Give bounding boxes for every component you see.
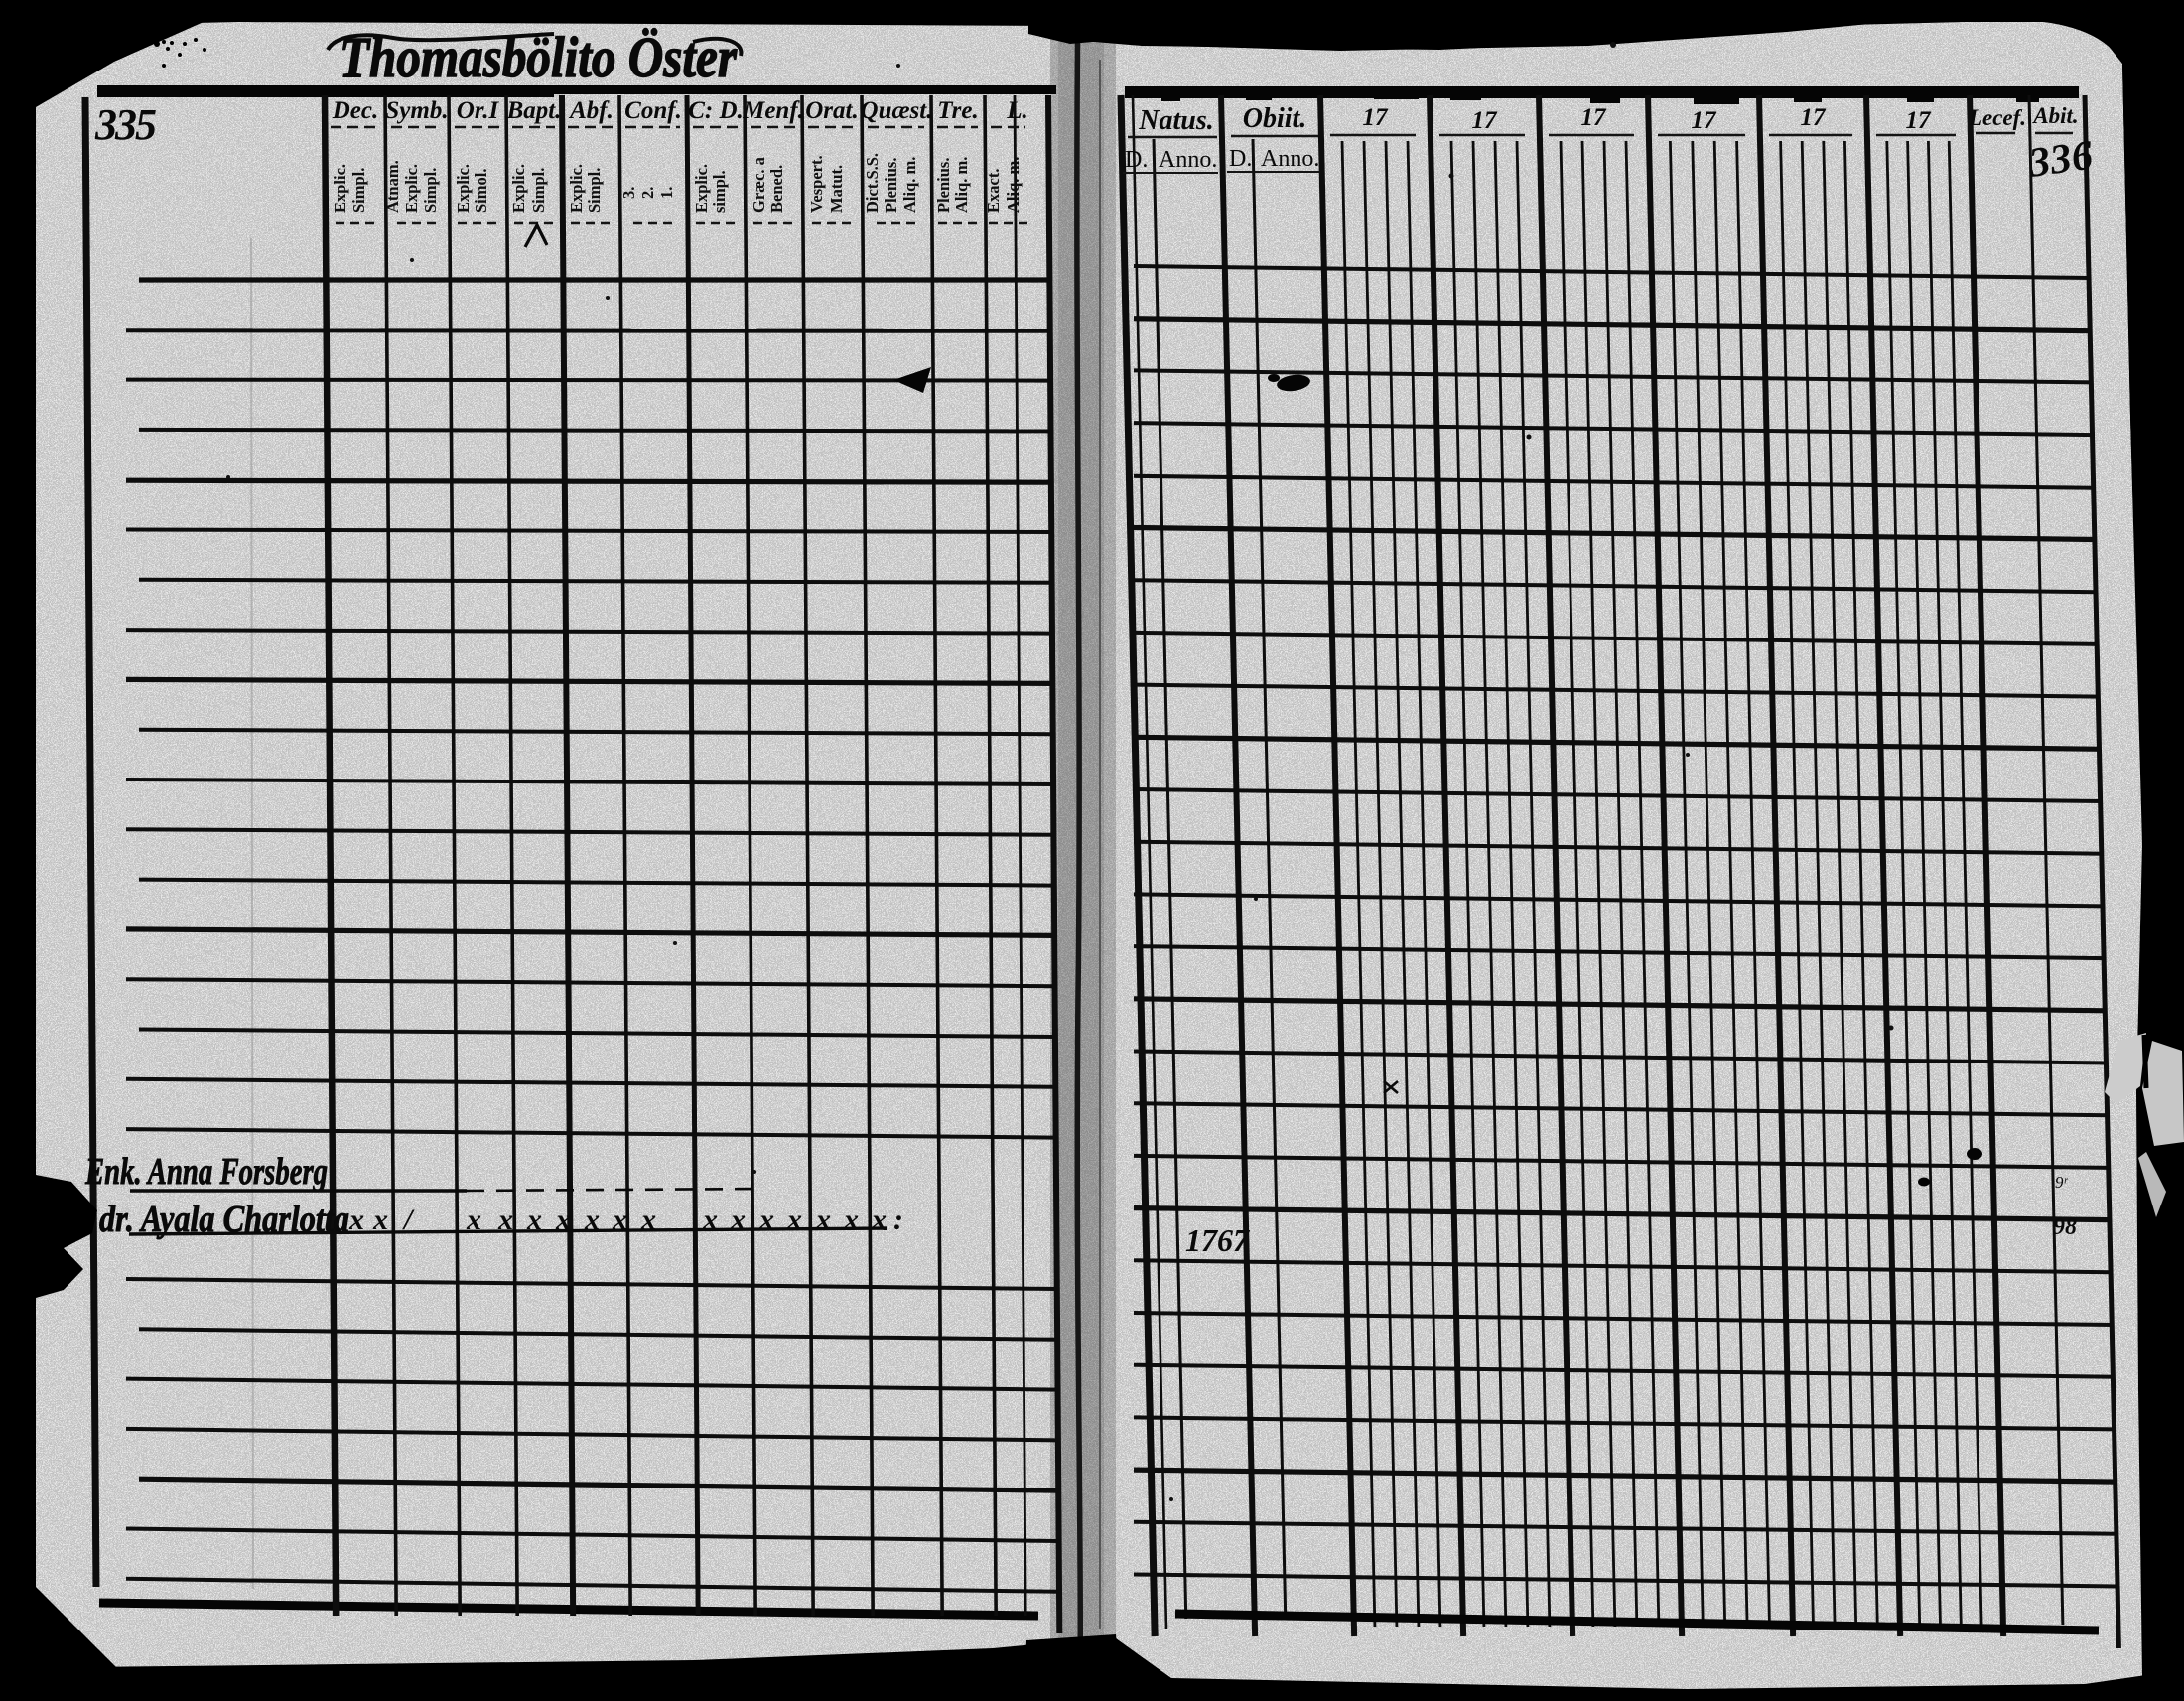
svg-text:Tre.: Tre.: [937, 97, 978, 124]
svg-text:Symb.: Symb.: [385, 97, 448, 124]
svg-text:17: 17: [1906, 107, 1933, 134]
svg-text:Quæst.: Quæst.: [861, 97, 933, 124]
svg-text:Explic.: Explic.: [567, 164, 586, 213]
svg-text:Atnam.: Atnam.: [383, 160, 402, 213]
svg-text:Abit.: Abit.: [2031, 103, 2078, 128]
svg-text:Lecef.: Lecef.: [1968, 105, 2026, 130]
svg-text:17: 17: [1581, 104, 1608, 131]
svg-text:Anno.: Anno.: [1159, 147, 1217, 173]
svg-text:Orat.: Orat.: [805, 97, 858, 124]
svg-text:17: 17: [1801, 104, 1828, 131]
svg-text:1.: 1.: [657, 187, 676, 199]
svg-text:3.: 3.: [619, 187, 638, 199]
svg-text:Anno.: Anno.: [1261, 146, 1319, 172]
svg-text:Græc. a: Græc. a: [750, 157, 768, 213]
svg-text:simpl.: simpl.: [710, 170, 729, 213]
svg-text:Conf.: Conf.: [624, 97, 682, 124]
svg-text:D.: D.: [1125, 147, 1148, 173]
svg-text:Natus.: Natus.: [1138, 105, 1213, 136]
svg-text:Exact.: Exact.: [984, 169, 1003, 213]
svg-text:Dec.: Dec.: [332, 97, 379, 124]
svg-text:Enk. Anna Forsberg: Enk. Anna Forsberg: [84, 1151, 328, 1193]
svg-text:Simpl.: Simpl.: [585, 168, 604, 213]
svg-text:Simpl.: Simpl.: [349, 168, 368, 213]
svg-text:Bapt.: Bapt.: [506, 97, 562, 124]
svg-text:Simpl.: Simpl.: [529, 168, 548, 213]
svg-text:Dict.S.S.: Dict.S.S.: [863, 153, 882, 213]
svg-text:L.: L.: [1006, 97, 1028, 124]
svg-text:Aliq. m.: Aliq. m.: [1004, 157, 1023, 213]
svg-text:Plenius.: Plenius.: [882, 158, 900, 213]
svg-text:Explic.: Explic.: [331, 164, 349, 213]
svg-text:336: 336: [2025, 132, 2096, 187]
svg-text:Explic.: Explic.: [402, 164, 421, 213]
svg-text:98: 98: [2053, 1214, 2077, 1240]
svg-text:Obiit.: Obiit.: [1243, 103, 1307, 134]
svg-text:9ʳ: 9ʳ: [2055, 1173, 2069, 1192]
svg-text:Menf.: Menf.: [742, 97, 804, 124]
svg-text:17: 17: [1363, 104, 1390, 131]
svg-text:Bened.: Bened.: [767, 165, 786, 213]
svg-text:Explic.: Explic.: [692, 164, 711, 213]
svg-text:Plenius.: Plenius.: [934, 158, 953, 213]
svg-text:17: 17: [1692, 107, 1718, 134]
svg-text:17: 17: [1472, 107, 1499, 134]
svg-text:C: D.: C: D.: [688, 97, 744, 124]
svg-text:Aliq. m.: Aliq. m.: [900, 157, 919, 213]
svg-text:335: 335: [94, 100, 157, 149]
svg-text:2.: 2.: [638, 187, 657, 199]
svg-text:Matut.: Matut.: [827, 165, 846, 213]
svg-text:D.: D.: [1229, 146, 1252, 172]
svg-text:Vespert.: Vespert.: [807, 155, 826, 213]
svg-text:Explic.: Explic.: [454, 164, 473, 213]
svg-text:Aliq. m.: Aliq. m.: [952, 157, 971, 213]
svg-text:Or.I: Or.I: [457, 97, 500, 124]
svg-text:1767: 1767: [1185, 1222, 1251, 1258]
svg-text:Simol.: Simol.: [472, 169, 490, 213]
svg-text:Simpl.: Simpl.: [421, 168, 440, 213]
svg-text:Explic.: Explic.: [509, 164, 528, 213]
svg-text:Abf.: Abf.: [568, 97, 614, 124]
